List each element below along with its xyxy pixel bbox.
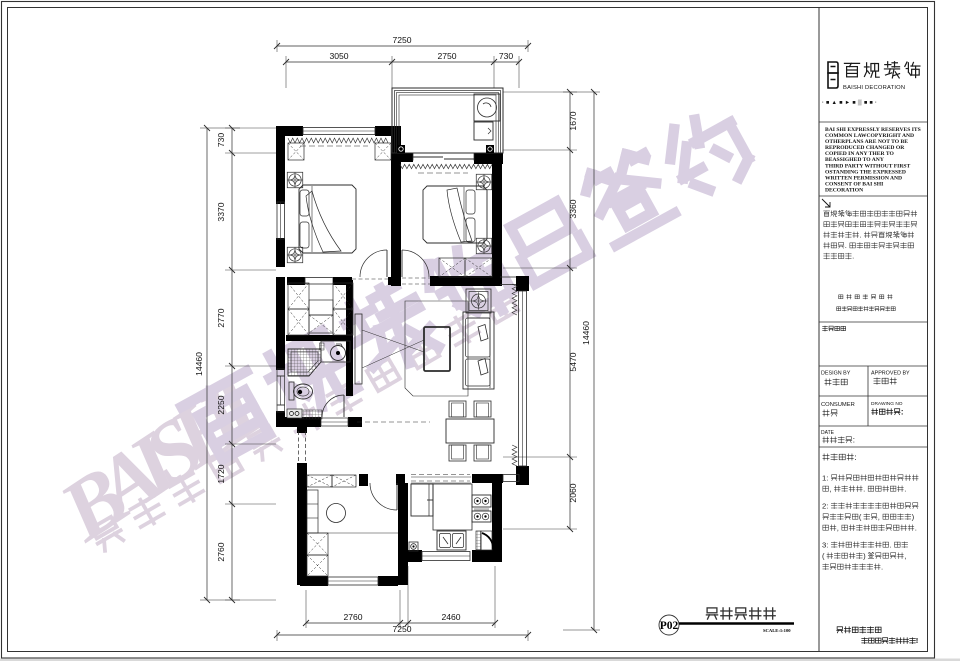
svg-text:3370: 3370 <box>216 202 226 221</box>
svg-text:1670: 1670 <box>568 111 578 130</box>
svg-text:14460: 14460 <box>194 352 204 376</box>
svg-text:,: , <box>837 523 839 532</box>
svg-text:2760: 2760 <box>216 542 226 561</box>
svg-text:·■▲■►■▒■■·: ·■▲■►■▒■■· <box>822 99 879 106</box>
svg-text:.: . <box>890 540 892 549</box>
svg-text:730: 730 <box>216 133 226 148</box>
svg-text:.: . <box>915 523 917 532</box>
svg-text:2250: 2250 <box>216 395 226 414</box>
svg-text::: : <box>853 436 855 445</box>
svg-text:2750: 2750 <box>437 51 456 61</box>
svg-text:1720: 1720 <box>216 464 226 483</box>
svg-text:DRAWING NO: DRAWING NO <box>871 401 903 407</box>
svg-text:SCALE:1:100: SCALE:1:100 <box>763 628 791 633</box>
svg-text:BAISHI DECORATION: BAISHI DECORATION <box>843 85 905 91</box>
svg-text:DATE: DATE <box>821 430 835 436</box>
svg-text:): ) <box>863 551 866 560</box>
svg-text:2760: 2760 <box>343 612 362 622</box>
svg-text::: : <box>854 452 856 462</box>
svg-text:DESIGN BY: DESIGN BY <box>821 371 851 377</box>
svg-text:2460: 2460 <box>441 612 460 622</box>
svg-text:2060: 2060 <box>568 483 578 502</box>
svg-text:.: . <box>863 484 865 493</box>
svg-text:,: , <box>904 551 906 560</box>
svg-text:(: ( <box>822 551 825 560</box>
svg-text:!: ! <box>916 636 919 645</box>
svg-text:2770: 2770 <box>216 308 226 327</box>
svg-text:DECORATION: DECORATION <box>825 188 863 194</box>
svg-text:): ) <box>912 512 915 521</box>
svg-text:APPROVED BY: APPROVED BY <box>871 371 910 377</box>
svg-text:14460: 14460 <box>581 321 591 345</box>
svg-text:3360: 3360 <box>568 199 578 218</box>
svg-text:1:: 1: <box>822 473 828 482</box>
svg-text:BAI SHI EXPRESSLY RESERVES ITS: BAI SHI EXPRESSLY RESERVES ITS <box>825 127 921 133</box>
svg-text:,: , <box>878 512 880 521</box>
svg-text:P02: P02 <box>660 620 679 632</box>
svg-text:.: . <box>852 252 854 261</box>
svg-text:7250: 7250 <box>392 35 411 45</box>
svg-text:CONSENT OF BAI SHI: CONSENT OF BAI SHI <box>825 181 883 187</box>
svg-text:CONSUMER: CONSUMER <box>821 402 855 408</box>
svg-text:3:: 3: <box>822 540 828 549</box>
svg-text:3050: 3050 <box>329 51 348 61</box>
svg-text::: : <box>901 407 904 416</box>
svg-text:5470: 5470 <box>568 352 578 371</box>
svg-text:2:: 2: <box>822 501 828 510</box>
svg-text:.: . <box>845 241 847 250</box>
svg-text:(: ( <box>859 512 862 521</box>
svg-text:.: . <box>904 484 906 493</box>
svg-text:.: . <box>881 562 883 571</box>
svg-text:730: 730 <box>499 51 514 61</box>
svg-text:.: . <box>859 230 861 239</box>
svg-text:,: , <box>829 484 831 493</box>
svg-text:7250: 7250 <box>392 624 411 634</box>
svg-text:BEASSIGHED TO ANY: BEASSIGHED TO ANY <box>825 157 884 163</box>
svg-text:OTHERPLANS ARE NOT TO BE: OTHERPLANS ARE NOT TO BE <box>825 139 908 145</box>
svg-text:OSTANDING THE EXPRESSED: OSTANDING THE EXPRESSED <box>825 169 906 175</box>
